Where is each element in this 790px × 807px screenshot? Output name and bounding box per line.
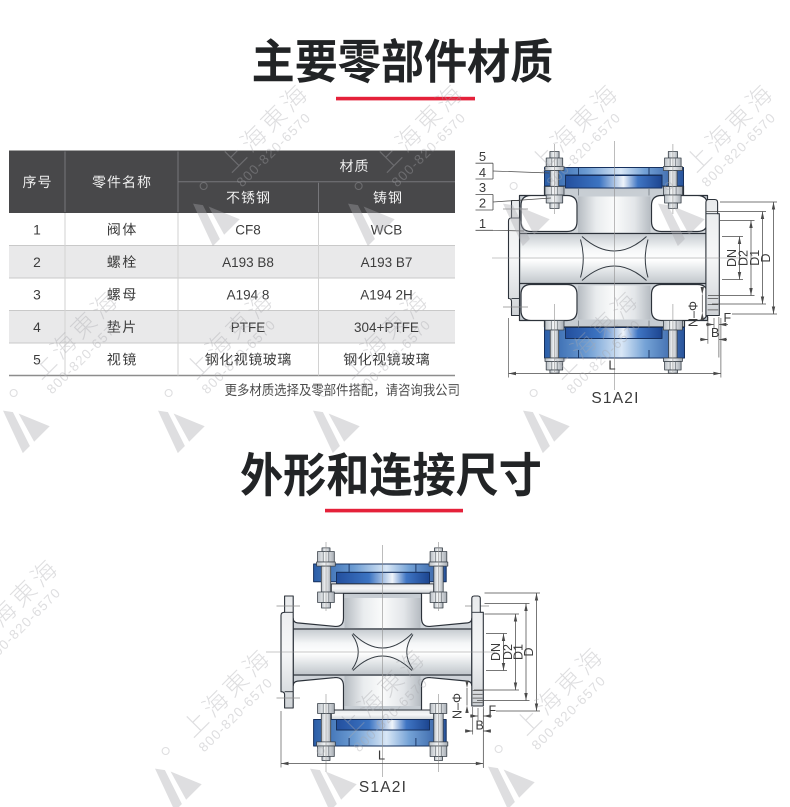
svg-text:1: 1 bbox=[479, 216, 486, 231]
svg-text:F: F bbox=[724, 311, 732, 325]
svg-text:4: 4 bbox=[33, 320, 41, 335]
svg-text:N–Φ: N–Φ bbox=[451, 693, 465, 719]
svg-text:B: B bbox=[476, 719, 484, 733]
svg-text:4: 4 bbox=[479, 165, 486, 180]
svg-text:5: 5 bbox=[479, 149, 486, 164]
svg-text:5: 5 bbox=[33, 352, 41, 367]
svg-text:A193 B8: A193 B8 bbox=[222, 255, 274, 270]
svg-text:A194 2H: A194 2H bbox=[360, 287, 413, 302]
svg-text:CF8: CF8 bbox=[235, 222, 261, 237]
svg-text:A193 B7: A193 B7 bbox=[361, 255, 413, 270]
svg-text:2: 2 bbox=[479, 196, 486, 211]
svg-text:S1A2I: S1A2I bbox=[591, 390, 639, 407]
svg-text:L: L bbox=[378, 748, 385, 763]
svg-text:3: 3 bbox=[479, 180, 486, 195]
svg-text:A194 8: A194 8 bbox=[227, 287, 270, 302]
svg-text:2: 2 bbox=[33, 255, 41, 270]
svg-text:D: D bbox=[522, 647, 536, 656]
svg-text:D: D bbox=[759, 253, 773, 262]
svg-text:3: 3 bbox=[33, 287, 41, 302]
svg-text:S1A2I: S1A2I bbox=[359, 779, 407, 796]
svg-text:F: F bbox=[489, 704, 497, 718]
svg-text:N–Φ: N–Φ bbox=[687, 301, 701, 327]
svg-text:1: 1 bbox=[33, 222, 41, 237]
svg-text:B: B bbox=[711, 326, 719, 340]
